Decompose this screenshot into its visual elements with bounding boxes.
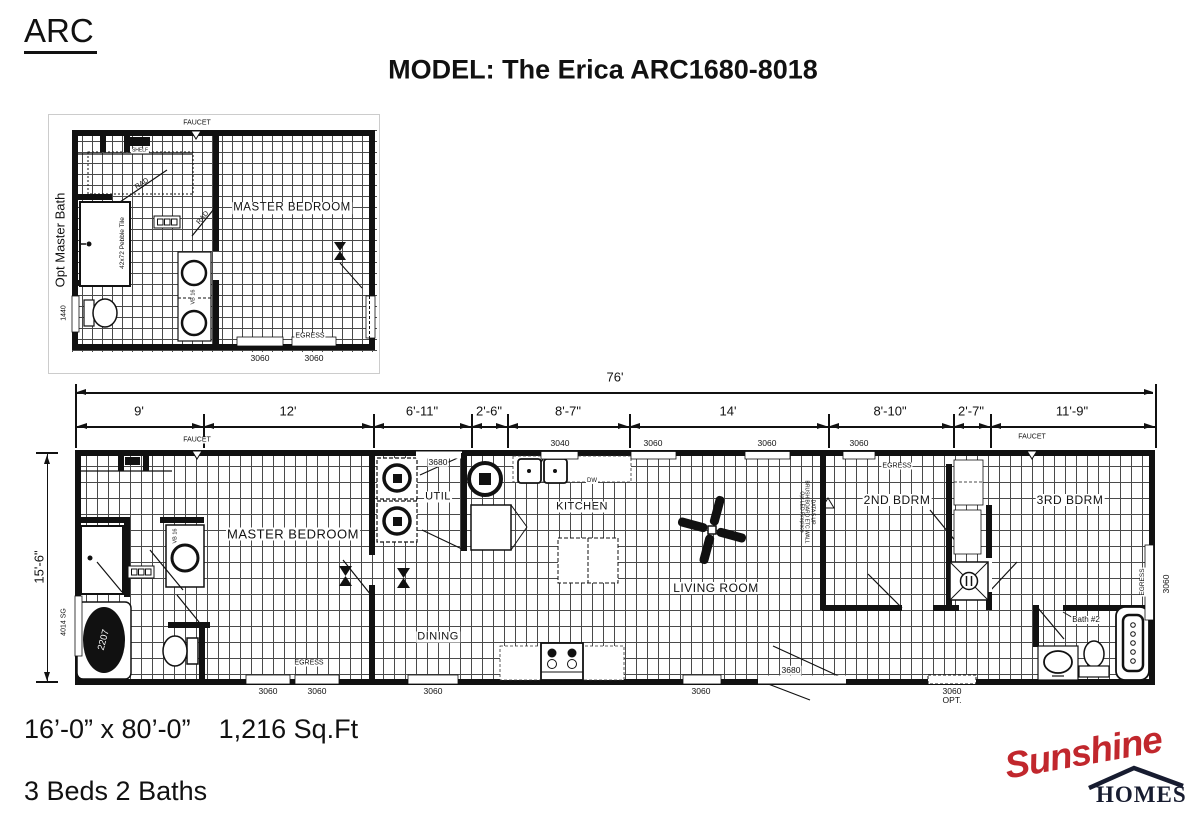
closet-shelves: [954, 460, 983, 554]
dim-arrow: [473, 423, 482, 429]
faucet-label: FAUCET: [182, 437, 212, 444]
kitchen-counter: [513, 456, 631, 483]
room-label-util: UTIL: [424, 492, 452, 503]
floor-plan-sheet: ARC MODEL: The Erica ARC1680-8018: [0, 0, 1200, 818]
inset-tile-label: 42x72 Pebble Tile: [120, 216, 127, 270]
segment-dim-label: 2'-7": [957, 405, 985, 418]
faucet-label: FAUCET: [1017, 434, 1047, 441]
room-label-living: LIVING ROOM: [672, 582, 760, 594]
inset-shower-controls: [154, 216, 180, 228]
main-plan: [75, 450, 1155, 685]
room-label-master: MASTER BEDROOM: [226, 528, 360, 541]
window-label: 3060: [691, 687, 712, 696]
master-closet: [80, 455, 172, 471]
window-label-right: 3060: [1162, 574, 1171, 595]
spec-size: 16’-0” x 80’-0”: [24, 714, 191, 744]
dim-arrow: [942, 423, 951, 429]
series-title: ARC: [24, 12, 97, 54]
window-label: 3060: [423, 687, 444, 696]
brand-logo: Sunshine HOMES: [1000, 722, 1195, 814]
segment-dim-label: 8'-10": [872, 405, 907, 418]
room-label-dining: DINING: [416, 632, 460, 643]
dim-arrow: [979, 423, 988, 429]
room-label-bath2: Bath #2: [1071, 616, 1101, 624]
dim-arrow: [830, 423, 839, 429]
vent-icon: [339, 566, 410, 588]
window-label: 3060: [307, 687, 328, 696]
dim-tick: [1155, 384, 1157, 448]
inset-window-label: 3060: [250, 354, 271, 363]
brand-logo-sub: HOMES: [1096, 782, 1187, 808]
segment-dim-label: 2'-6": [475, 405, 503, 418]
egress-label: EGRESS: [293, 660, 324, 667]
master-shower: [81, 526, 123, 594]
shower-controls: [128, 566, 154, 578]
rear-door-gap: [758, 676, 846, 684]
dishwasher-label: DW: [586, 478, 598, 484]
kitchen-island: [558, 538, 618, 583]
dim-arrow: [496, 423, 505, 429]
inset-faucet-label: FAUCET: [182, 120, 212, 127]
room-label-bdrm3: 3RD BDRM: [1036, 494, 1105, 506]
model-title: MODEL: The Erica ARC1680-8018: [387, 57, 819, 84]
dim-arrow: [460, 423, 469, 429]
dim-tick: [828, 414, 830, 448]
segment-dim-label: 8'-7": [554, 405, 582, 418]
dim-arrow: [618, 423, 627, 429]
dim-tick: [507, 414, 509, 448]
room-label-bdrm2: 2ND BDRM: [863, 494, 932, 506]
inset-window-1440-label: 1440: [61, 304, 68, 322]
water-heater-icon: [950, 562, 988, 600]
inset-windows: [72, 296, 375, 346]
inset-plan-drawing: [72, 130, 377, 352]
dim-arrow: [375, 423, 384, 429]
dim-arrow: [955, 423, 964, 429]
front-door-label: 3680: [428, 458, 449, 467]
refrigerator-icon: [471, 505, 527, 550]
fireplace-wall: [820, 453, 834, 610]
rear-door-label: 3680: [781, 666, 802, 675]
segment-dim-label: 11'-9": [1055, 405, 1089, 418]
dim-tick: [75, 384, 77, 448]
window-label: 3060: [258, 687, 279, 696]
dim-tick: [990, 414, 992, 448]
dim-arrow: [817, 423, 826, 429]
vanity-label: VB 16: [173, 528, 179, 545]
dim-arrow: [509, 423, 518, 429]
optional-window: [928, 675, 976, 684]
optional-window-label: 3060 OPT.: [942, 687, 963, 705]
master-toilet: [163, 636, 198, 666]
inset-room-label: MASTER BEDROOM: [232, 202, 352, 214]
segment-dim-label: 12': [279, 405, 298, 418]
window-label-4014: 4014 SG: [61, 607, 68, 637]
water-heater-icon: [469, 463, 501, 495]
inset-vanity-label: VB 16: [191, 289, 197, 306]
dim-arrow: [631, 423, 640, 429]
fireplace-note: DATA 5 UP BRUSH BOARD ETC WALL Opt LED F…: [798, 480, 815, 545]
spec-beds-baths: 3 Beds 2 Baths: [24, 776, 207, 807]
spec-size-line: 16’-0” x 80’-0”1,216 Sq.Ft: [24, 714, 358, 745]
window-label: 3040: [550, 439, 571, 448]
ceiling-fan-icon: [677, 495, 747, 565]
dim-arrow: [1144, 423, 1153, 429]
dim-arrow: [77, 389, 86, 395]
segment-dim-label: 14': [719, 405, 738, 418]
inset-shelf-label: SHELF: [131, 149, 149, 154]
egress-label: EGRESS: [881, 463, 912, 470]
window-label: 3060: [757, 439, 778, 448]
dim-arrow: [44, 672, 50, 681]
util-wall: [461, 453, 467, 551]
dim-arrow: [192, 423, 201, 429]
dim-arrow: [205, 423, 214, 429]
inset-vent-icon: [334, 242, 362, 288]
spec-sqft: 1,216 Sq.Ft: [219, 714, 359, 744]
dim-arrow: [362, 423, 371, 429]
segment-dim-label: 9': [133, 405, 145, 418]
dim-tick: [471, 414, 473, 448]
overall-dim-label: 76': [606, 371, 625, 384]
segment-dim-label: 6'-11": [405, 405, 439, 418]
window-label: 3060: [849, 439, 870, 448]
main-plan-drawing: [75, 450, 1155, 685]
window-label: 3060: [643, 439, 664, 448]
inset-window-label: 3060: [304, 354, 325, 363]
dim-tick: [629, 414, 631, 448]
dim-tick: [373, 414, 375, 448]
room-label-kitchen: KITCHEN: [555, 502, 609, 513]
inset-toilet: [84, 299, 117, 327]
range-icon: [500, 643, 624, 680]
inset-plan: [72, 130, 377, 352]
bedroom-walls: [822, 464, 1152, 647]
dim-arrow: [78, 423, 87, 429]
inset-egress-label: EGRESS: [294, 333, 325, 340]
dim-arrow: [992, 423, 1001, 429]
overall-dim-line: [77, 392, 1153, 394]
height-dim-label: 15'-6": [33, 549, 46, 584]
washer-dryer-icon: [377, 458, 417, 542]
egress-label-right: EGRESS: [1140, 567, 1147, 596]
dim-arrow: [1144, 389, 1153, 395]
dim-tick: [953, 414, 955, 448]
dim-arrow: [44, 455, 50, 464]
height-dim-line: [47, 454, 49, 682]
inset-side-label: Opt Master Bath: [54, 192, 67, 289]
